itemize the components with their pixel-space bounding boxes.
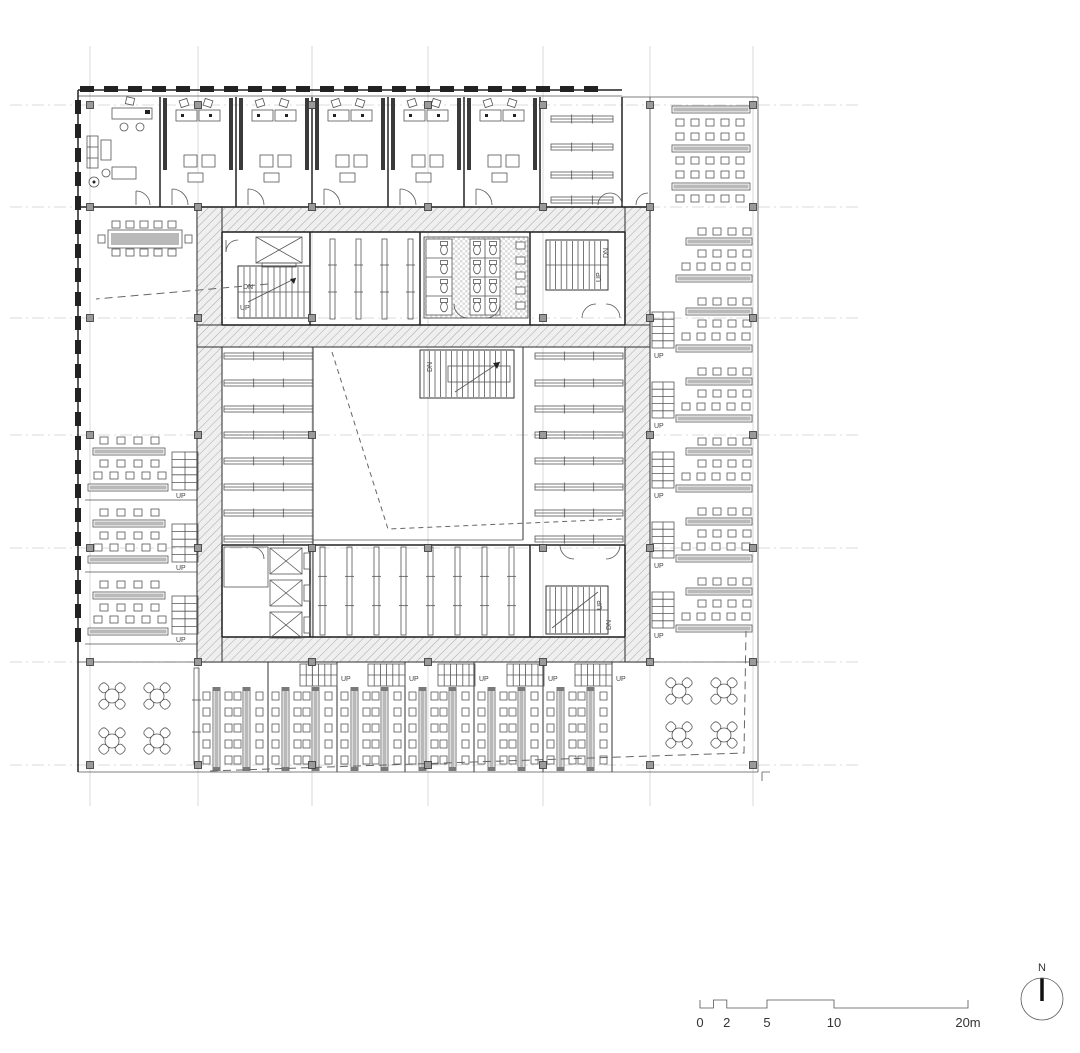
up-label: UP [341,676,351,683]
scale-tick-label: 5 [763,1015,770,1030]
up-label: UP [654,353,664,360]
up-label: UP [548,676,558,683]
up-label: UP [654,563,664,570]
up-label: UP [654,633,664,640]
north-label: N [1038,962,1046,974]
up-label: UP [654,493,664,500]
up-label: UP [176,493,186,500]
up-label: UP [409,676,419,683]
floor-plan-page: DNUPDNUPDNUPDNUPUPUPUPUPUPUPUPUPUPUPUPUP… [0,0,1080,1053]
toilet-block [424,237,528,318]
up-label: UP [654,423,664,430]
window-wall-left [75,100,81,642]
scale-tick-label: 0 [696,1015,703,1030]
dn-label: DN [603,248,610,258]
up-label: UP [479,676,489,683]
up-label: UP [240,305,250,312]
floor-plan-canvas: DNUPDNUPDNUPDNUPUPUPUPUPUPUPUPUPUPUPUPUP… [0,0,1080,1053]
up-label: UP [596,272,603,282]
scale-tick-label: 20m [955,1015,980,1030]
dn-label: DN [427,362,434,372]
up-label: UP [176,637,186,644]
up-label: UP [597,600,604,610]
dn-label: DN [606,620,613,630]
up-label: UP [616,676,626,683]
up-label: UP [176,565,186,572]
scale-tick-label: 10 [827,1015,841,1030]
scale-tick-label: 2 [723,1015,730,1030]
